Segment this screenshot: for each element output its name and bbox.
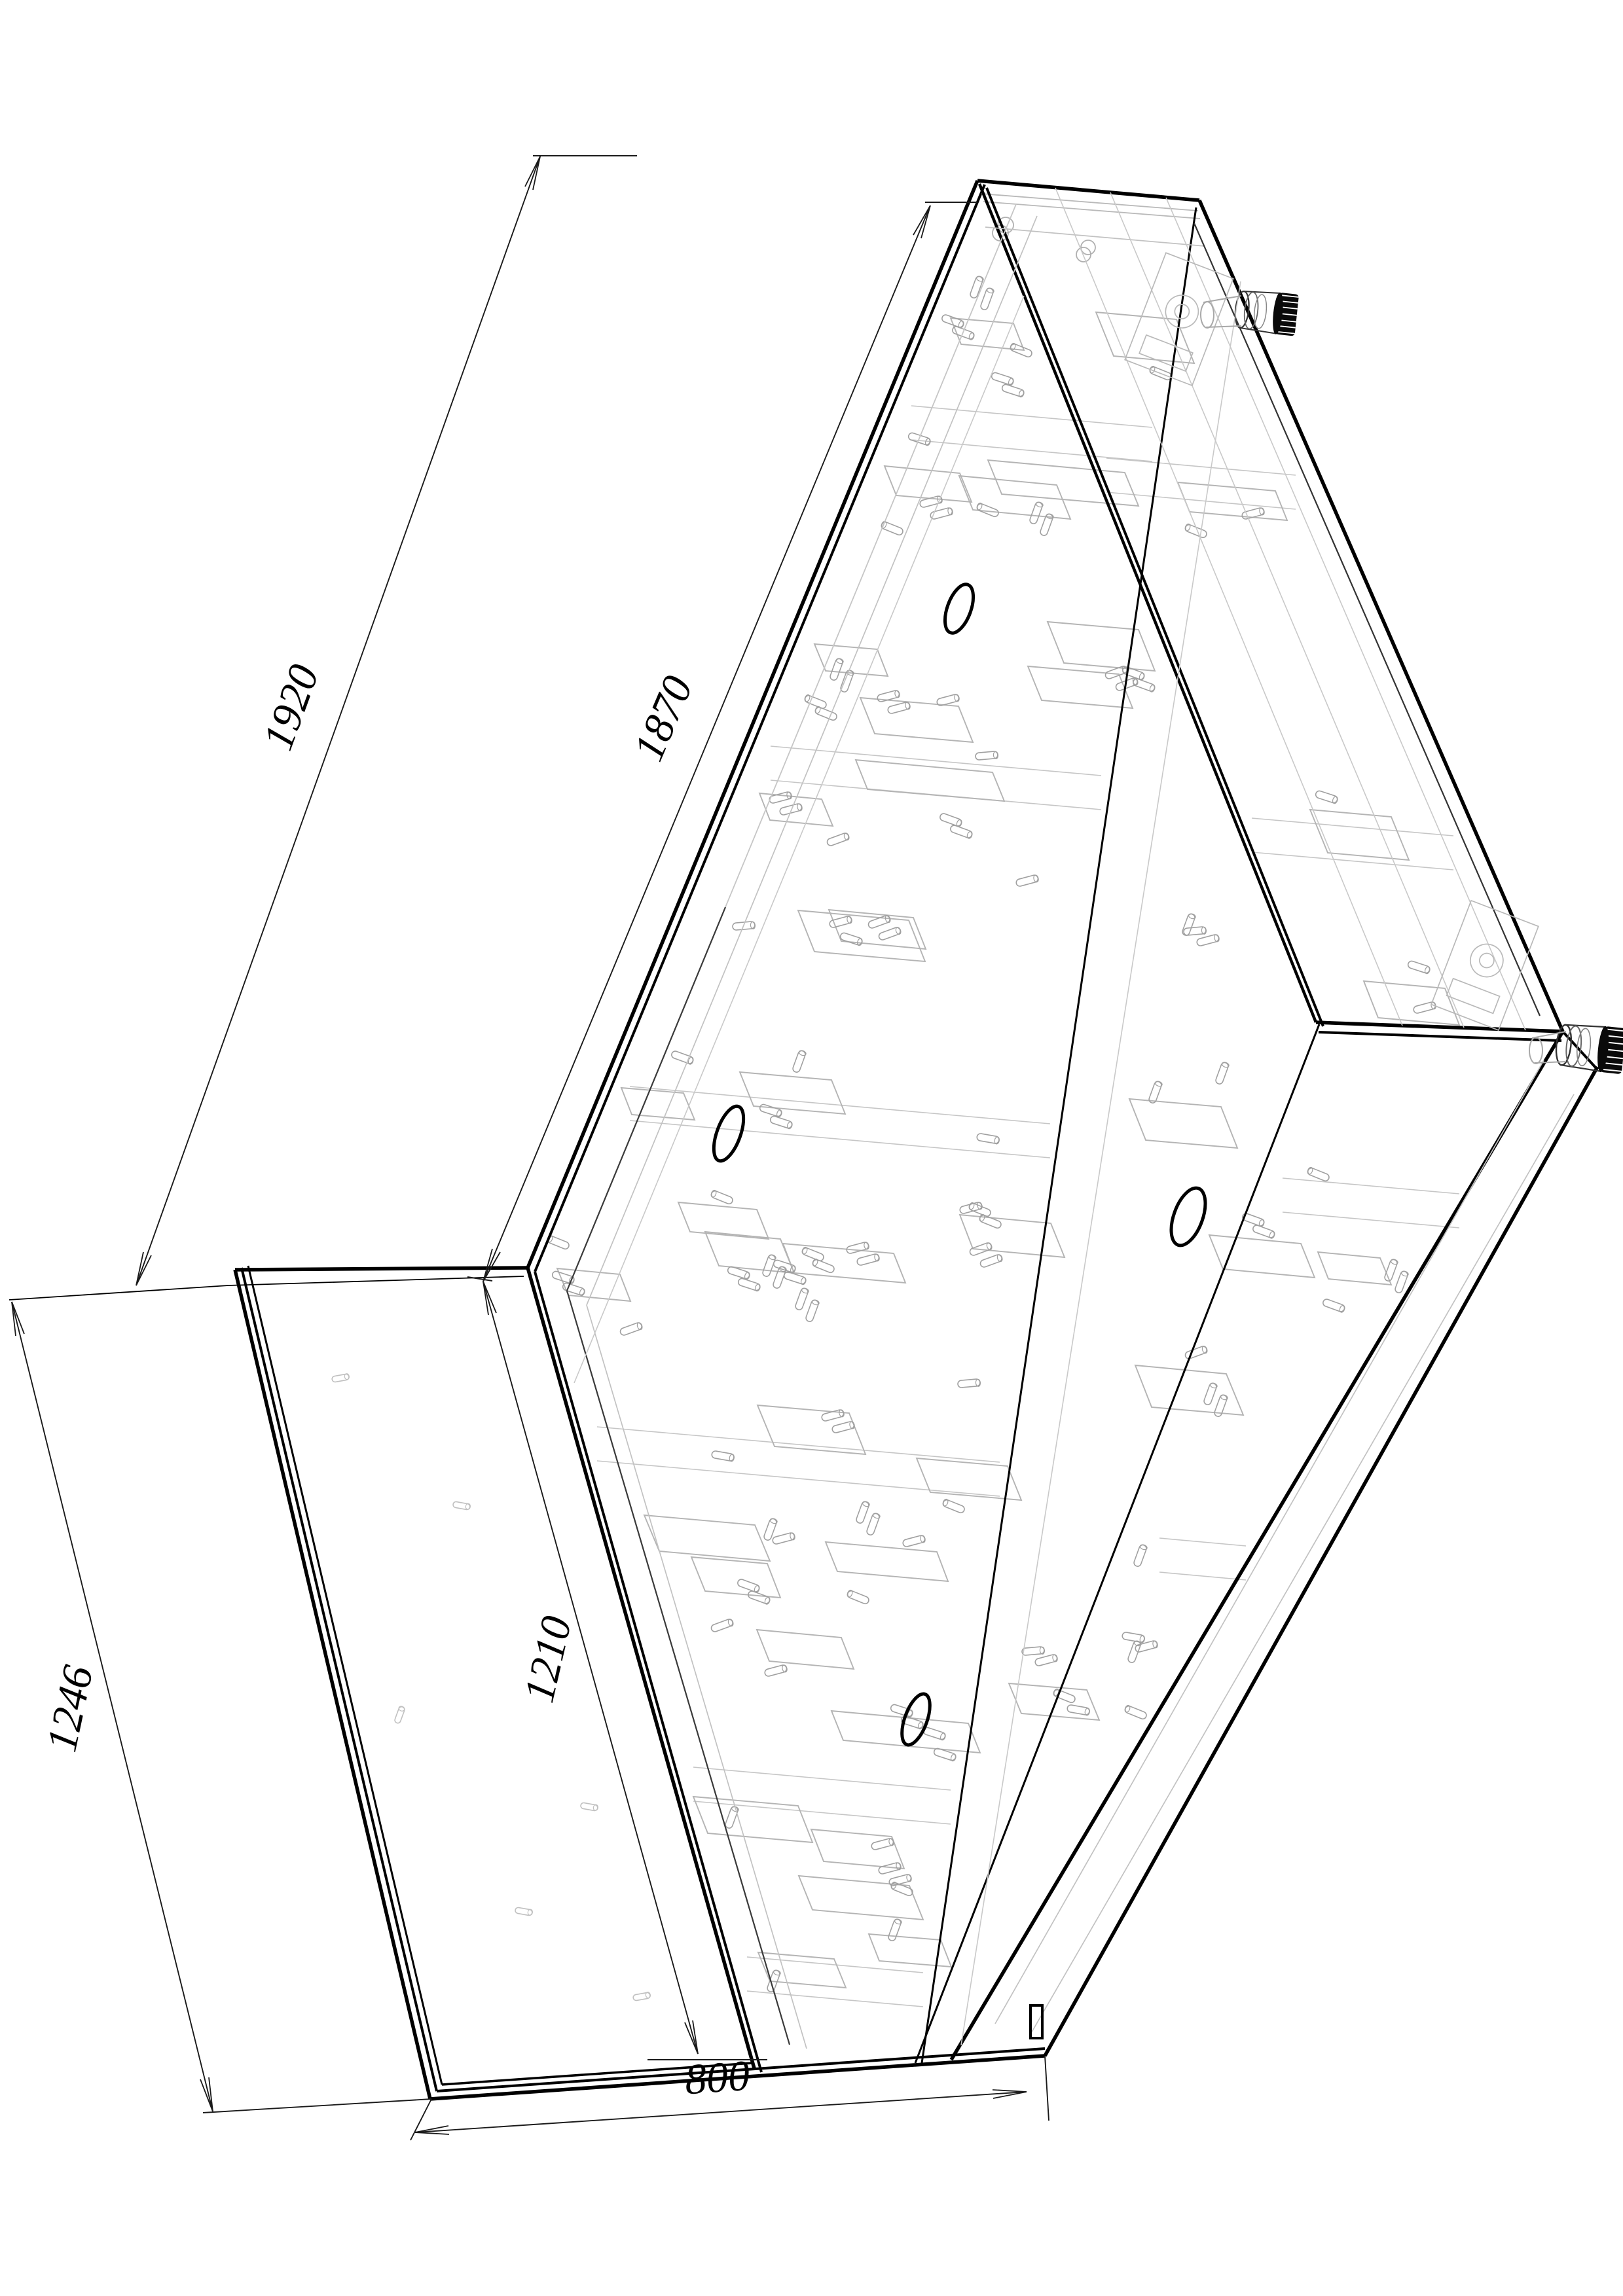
svg-text:800: 800 xyxy=(684,2052,752,2104)
